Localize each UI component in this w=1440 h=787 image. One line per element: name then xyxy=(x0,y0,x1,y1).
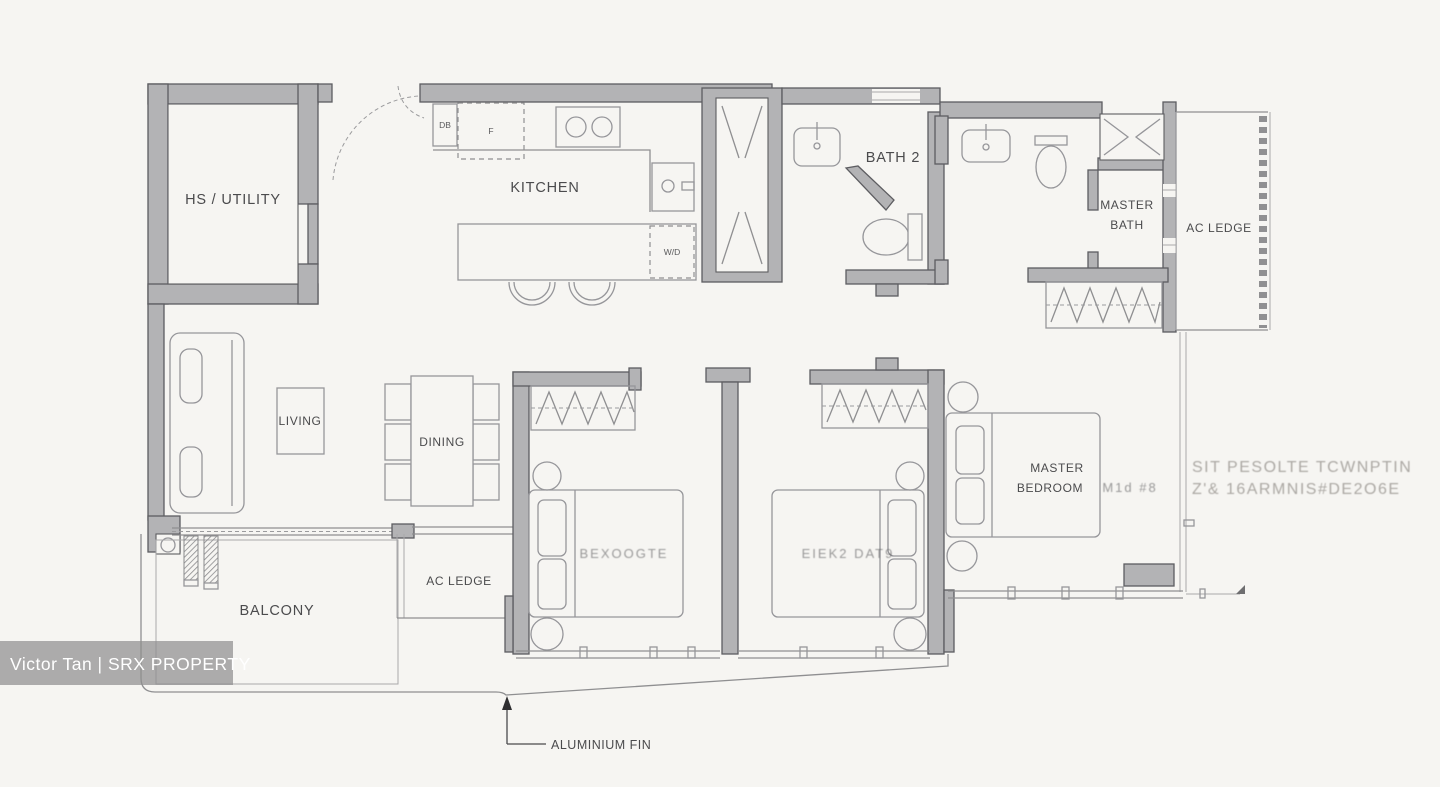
master-bath-toilet xyxy=(1035,136,1067,145)
hs-utility-label: HS / UTILITY xyxy=(185,192,281,208)
master-bath-label-1: MASTER xyxy=(1100,198,1154,212)
bedroom3-label: BEXOOGTE xyxy=(580,546,669,561)
garbled-watermark-line1: SIT PESOLTE TCWNPTIN xyxy=(1192,459,1412,476)
kitchen-sink xyxy=(652,163,694,211)
master-bath-label-2: BATH xyxy=(1110,218,1144,232)
bedroom2-label: EIEK2 DAT9 xyxy=(802,546,895,561)
ac-unit xyxy=(1124,564,1174,586)
aluminium-fin-label: ALUMINIUM FIN xyxy=(551,738,651,752)
master-bedroom-garble: M1d #8 xyxy=(1102,480,1157,495)
master-bedroom-label-2: BEDROOM xyxy=(1017,481,1083,495)
shower xyxy=(1100,114,1164,160)
washer-dryer-label: W/D xyxy=(664,247,681,257)
fridge-label: F xyxy=(488,126,493,136)
garbled-watermark-line2: Z'& 16ARMNIS#DE2O6E xyxy=(1192,481,1401,498)
agent-watermark: Victor Tan | SRX PROPERTY xyxy=(0,641,251,685)
dining-label: DINING xyxy=(419,435,465,449)
ac-ledge-bottom-label: AC LEDGE xyxy=(426,574,492,588)
ac-ledge-right-label: AC LEDGE xyxy=(1186,221,1252,235)
hs-utility-room: HS / UTILITY xyxy=(148,84,318,304)
bath2-toilet xyxy=(863,219,909,255)
master-bed xyxy=(946,413,1100,537)
kitchen-island xyxy=(458,224,696,280)
master-bedroom-label-1: MASTER xyxy=(1030,461,1084,475)
db-label: DB xyxy=(439,120,451,130)
bath2-label: BATH 2 xyxy=(866,150,921,166)
balcony-label: BALCONY xyxy=(240,603,315,619)
hall-closet xyxy=(702,88,782,282)
kitchen-label: KITCHEN xyxy=(510,180,579,196)
agent-watermark-text: Victor Tan | SRX PROPERTY xyxy=(10,654,251,674)
living-label: LIVING xyxy=(279,414,322,428)
floor-plan: HS / UTILITY DB F W/D KITCHEN xyxy=(0,0,1440,787)
